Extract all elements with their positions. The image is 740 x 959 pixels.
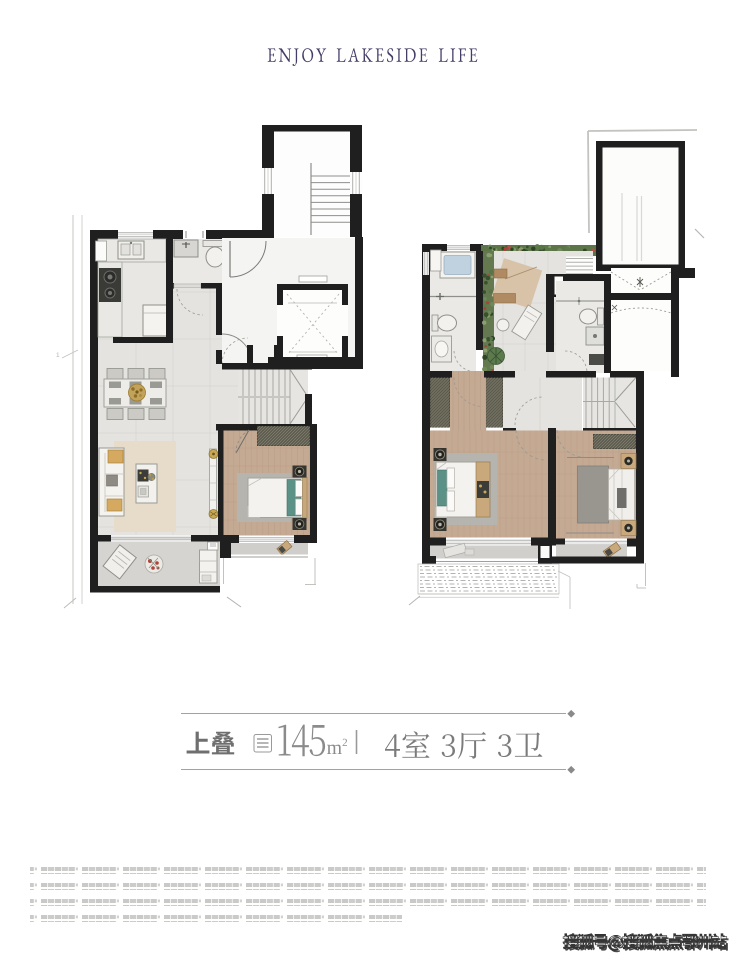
svg-text:1: 1 bbox=[56, 352, 60, 359]
